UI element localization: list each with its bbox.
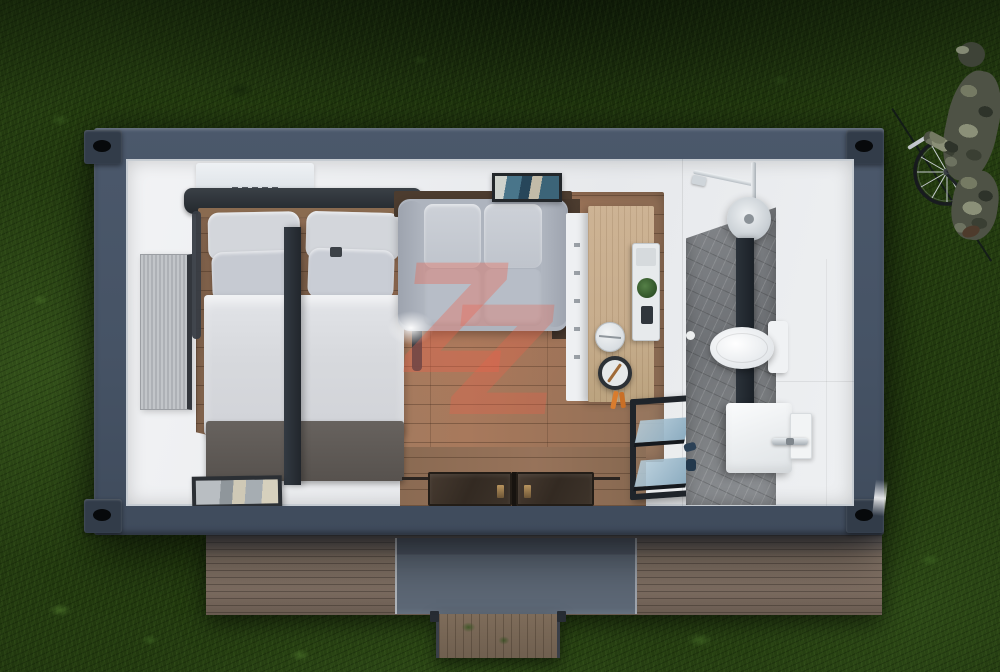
pillow <box>307 248 395 301</box>
glass-shelf-panel <box>633 457 692 491</box>
sofa-armrest <box>398 201 425 327</box>
cooking-pot <box>595 322 625 352</box>
chrome-faucet-bar <box>772 438 808 445</box>
bed-duvet <box>204 295 404 435</box>
toilet-bowl <box>710 327 774 369</box>
person-head-cap <box>958 42 985 67</box>
deck-canopy-panel <box>395 538 637 614</box>
step-post <box>557 611 566 622</box>
door-handle <box>524 485 531 498</box>
sofa-back-cushion <box>424 204 481 268</box>
wall-art-frame <box>492 173 562 202</box>
picture-frame-on-floor <box>192 475 283 506</box>
sofa-back-cushion <box>484 204 542 268</box>
wall-seam <box>826 259 827 506</box>
sliding-glass-door <box>428 472 512 506</box>
render-scene: Z Z <box>0 0 1000 672</box>
door-track <box>402 477 428 480</box>
bottle <box>641 306 653 324</box>
container-interior <box>126 159 854 506</box>
corner-casting-top-left <box>84 130 122 164</box>
deck-steps <box>436 614 560 658</box>
sofa-armrest <box>541 201 568 327</box>
bath-accessory <box>686 459 696 471</box>
shower-valve <box>691 175 707 187</box>
headboard-gap-item <box>330 247 342 257</box>
shower-head <box>727 197 771 241</box>
step-post <box>430 611 439 622</box>
door-handle <box>497 485 504 498</box>
shelf-box <box>636 248 656 266</box>
wall-towel-panel <box>790 413 812 459</box>
sofa-seat-cushion <box>484 269 542 326</box>
potted-plant <box>637 278 657 298</box>
frying-pan-with-spoon <box>598 356 632 390</box>
floor-drain <box>686 331 695 340</box>
bed-foot-blanket <box>206 421 404 481</box>
bed-frame-rail <box>192 211 201 339</box>
glass-shelf-panel <box>634 417 690 447</box>
light-glare-spot <box>388 311 434 345</box>
sliding-glass-door <box>516 472 594 506</box>
ceiling-beam <box>284 227 301 485</box>
corner-casting-bottom-left <box>84 499 122 533</box>
window-blinds <box>140 254 192 410</box>
kitchen-shelf-rack <box>632 243 660 341</box>
door-track <box>594 477 620 480</box>
